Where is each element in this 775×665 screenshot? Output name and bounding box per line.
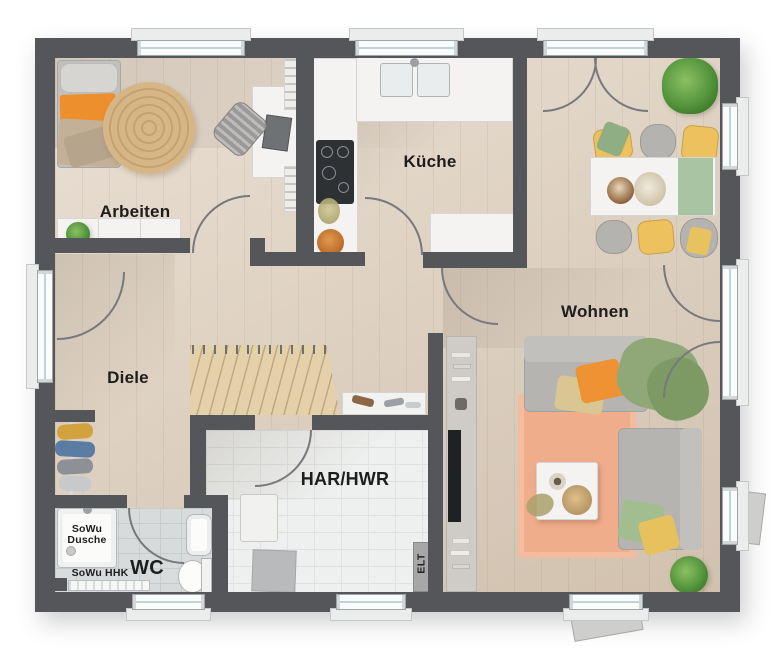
jacket-blue <box>55 440 96 458</box>
wall-wc-har <box>212 495 228 592</box>
dining-chair-yellow <box>637 218 676 255</box>
towel-radiator <box>68 580 150 591</box>
floor-plan: ELT SoWu Dusche SoWu HHK <box>0 0 775 665</box>
book-stack <box>451 376 471 382</box>
room-label-diele: Diele <box>98 369 158 387</box>
palm-plant <box>662 58 718 114</box>
book-stack <box>450 550 470 556</box>
burner <box>338 182 349 193</box>
room-label-arbeiten: Arbeiten <box>95 203 175 221</box>
jacket-light <box>59 475 92 492</box>
serving-bowl <box>607 177 634 204</box>
burner <box>321 146 333 158</box>
table-runner <box>678 158 713 215</box>
window-kueche <box>355 40 458 56</box>
terrace-door-dining <box>543 40 648 56</box>
wall-wc-top-left <box>55 495 127 508</box>
room-label-wohnen: Wohnen <box>555 303 635 321</box>
jacket-grey <box>57 458 94 475</box>
shoes-light <box>405 402 421 408</box>
burner <box>337 146 349 158</box>
room-label-har-hwr: HAR/HWR <box>295 470 395 489</box>
shower-label-line2: Dusche <box>67 534 106 546</box>
floor-plant <box>670 556 708 594</box>
water-heater <box>240 494 278 542</box>
kitchen-island <box>430 213 514 257</box>
electrical-panel-label: ELT <box>416 546 427 582</box>
wall-har-wohnen <box>428 333 443 592</box>
window-wohnen-right <box>722 487 738 545</box>
wall-kueche-bottom-right <box>423 252 527 268</box>
stair-railing <box>192 345 332 354</box>
wall-kueche-dining <box>513 58 527 268</box>
bed-pillow <box>60 63 118 93</box>
room-label-kueche: Küche <box>395 153 465 171</box>
wall-arbeiten-kueche <box>296 58 314 258</box>
vase <box>549 473 566 490</box>
shower-label: SoWu Dusche <box>62 524 112 546</box>
faucet <box>410 58 419 67</box>
wall-coatrack-stub <box>55 410 95 422</box>
window-har <box>336 594 406 610</box>
burner <box>322 166 336 180</box>
window-wc <box>132 594 205 610</box>
sofa-backrest <box>680 428 702 550</box>
tv-screen <box>448 430 461 522</box>
staircase <box>190 345 340 415</box>
flower-bouquet <box>634 172 666 206</box>
shower-drain <box>66 546 76 556</box>
window-wohnen-bottom <box>569 594 643 610</box>
room-label-wc: WC <box>127 558 167 579</box>
tray <box>562 485 592 515</box>
window-arbeiten <box>137 40 245 56</box>
decor-object <box>455 398 467 410</box>
book-stack <box>452 538 470 544</box>
book-stack <box>453 364 471 369</box>
kitchen-sink-left <box>380 63 413 97</box>
dining-chair-grey <box>596 220 632 254</box>
laptop <box>262 114 292 151</box>
jacket-yellow <box>57 423 94 440</box>
appliance-box <box>251 549 296 593</box>
kitchen-sink-right <box>417 63 450 97</box>
wall-kueche-bottom-left <box>250 252 365 266</box>
herb-sprig <box>318 198 340 224</box>
washbasin <box>186 514 212 556</box>
entrance-door <box>37 270 53 383</box>
wall-stub-dark <box>55 578 67 591</box>
book-stack <box>452 564 470 569</box>
toilet-tank <box>201 558 212 594</box>
book-stack <box>451 352 471 358</box>
balcony-door-wohnen <box>722 265 738 400</box>
jute-rug <box>103 82 195 174</box>
window-dining-right <box>722 103 738 170</box>
wall-arbeiten-bottom <box>55 238 190 253</box>
dining-chair-grey <box>640 124 676 160</box>
wall-under-stairs-right <box>312 415 428 430</box>
